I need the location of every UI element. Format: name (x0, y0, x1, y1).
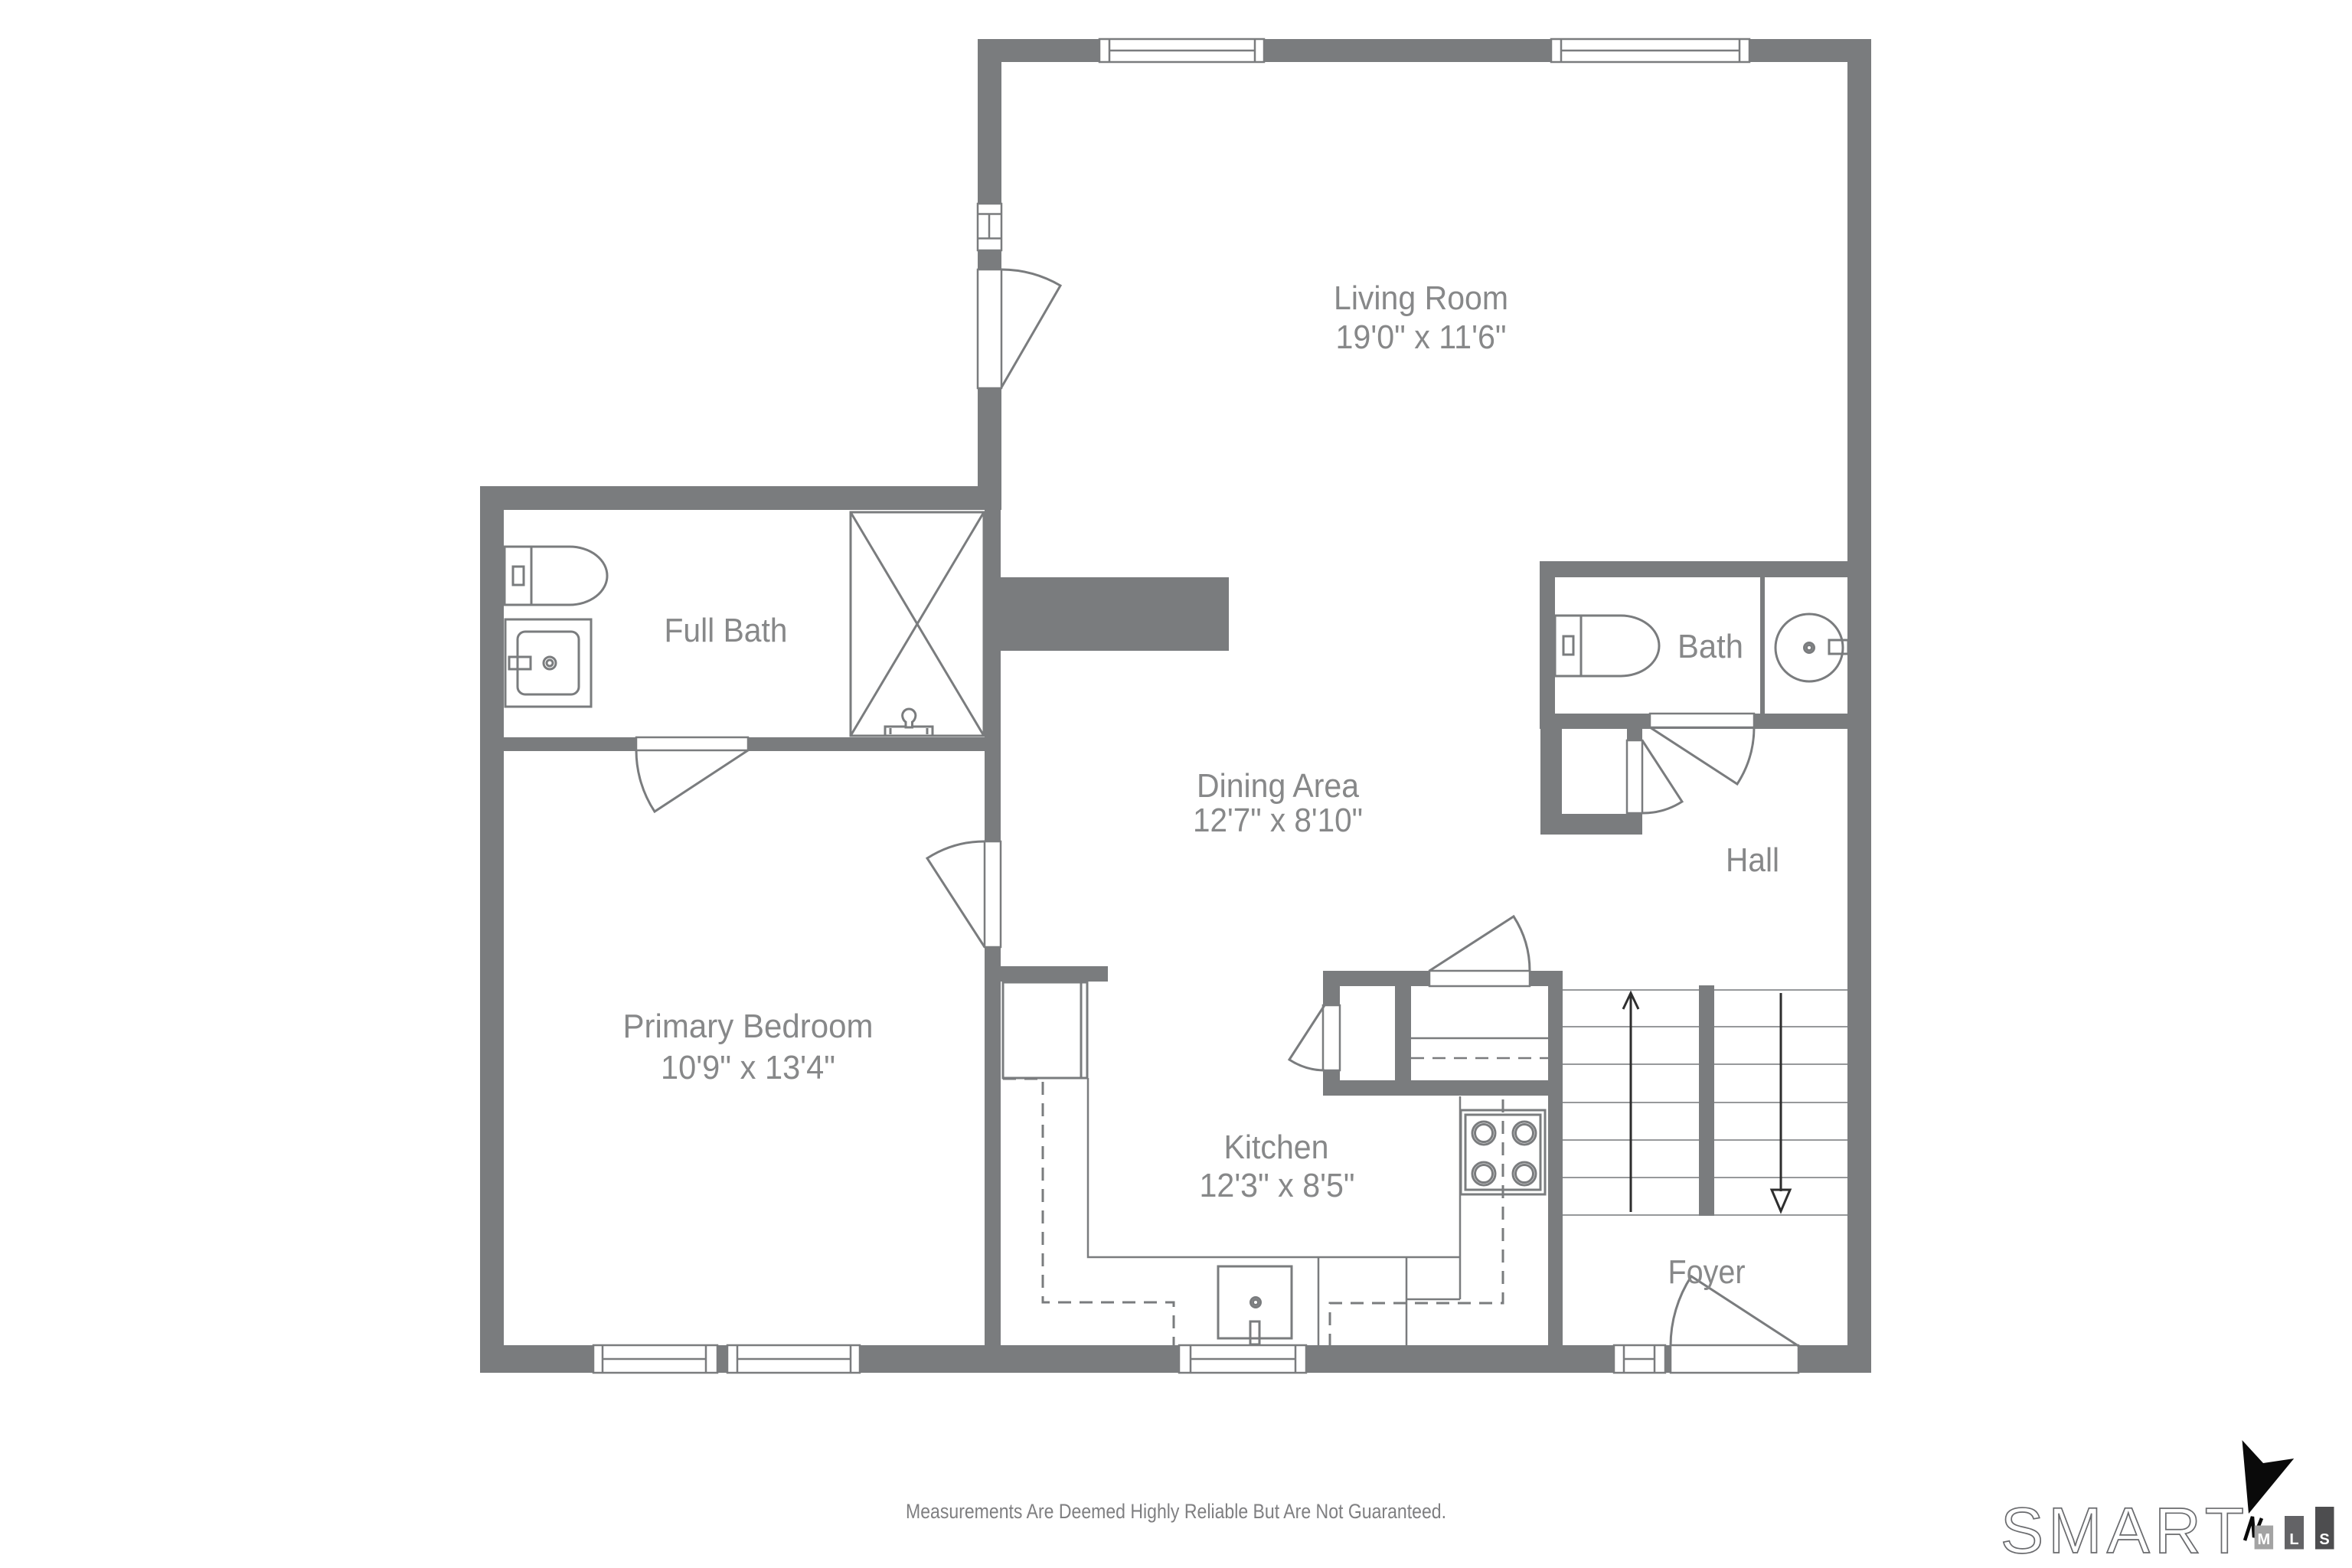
svg-text:Bath: Bath (1677, 628, 1743, 665)
svg-text:L: L (2289, 1531, 2298, 1548)
svg-text:Hall: Hall (1726, 841, 1779, 879)
svg-text:10'9" x 13'4": 10'9" x 13'4" (661, 1049, 835, 1086)
svg-text:Kitchen: Kitchen (1224, 1129, 1329, 1166)
svg-text:Foyer: Foyer (1668, 1253, 1746, 1291)
svg-text:Full Bath: Full Bath (665, 612, 788, 649)
svg-text:12'7" x 8'10": 12'7" x 8'10" (1193, 802, 1363, 839)
svg-text:Primary Bedroom: Primary Bedroom (623, 1008, 874, 1045)
svg-text:19'0" x 11'6": 19'0" x 11'6" (1336, 318, 1507, 356)
svg-text:Measurements Are Deemed Highly: Measurements Are Deemed Highly Reliable … (906, 1500, 1446, 1523)
svg-text:S: S (2319, 1531, 2329, 1548)
svg-text:12'3" x 8'5": 12'3" x 8'5" (1200, 1167, 1355, 1204)
svg-text:Living Room: Living Room (1334, 279, 1508, 317)
svg-text:M: M (2257, 1531, 2270, 1548)
svg-text:Dining Area: Dining Area (1197, 767, 1359, 805)
svg-text:SMART: SMART (2001, 1494, 2250, 1566)
